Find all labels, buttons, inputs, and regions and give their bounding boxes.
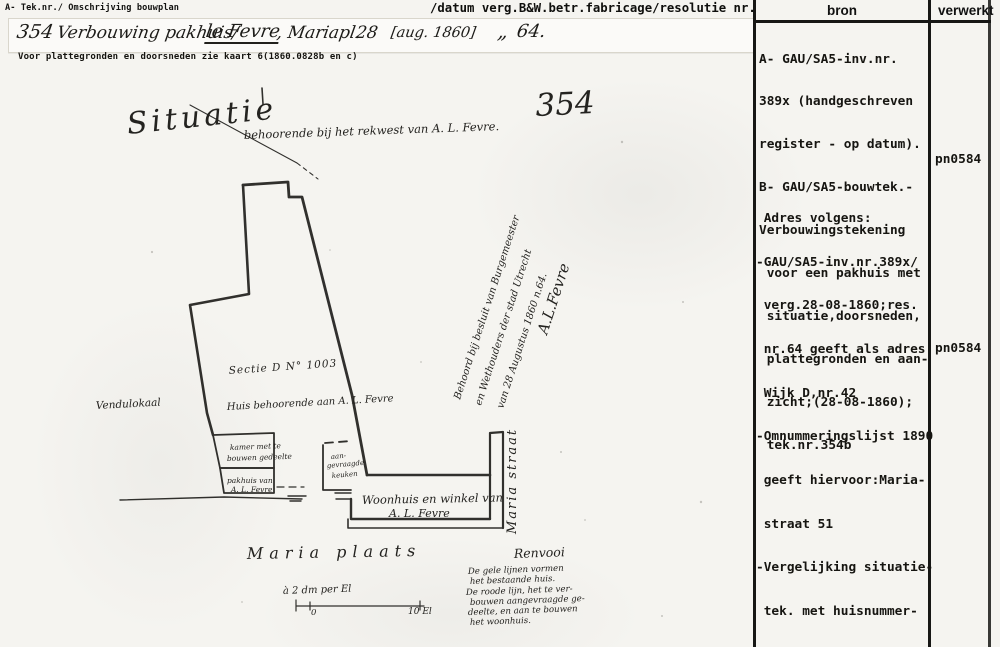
- kitchen-box-dashed-top: [325, 441, 351, 443]
- panel-right-border: [988, 0, 991, 647]
- annex-box2-label-2: A. L. Fevre: [230, 485, 273, 494]
- bron-a-line: 389x (handgeschreven: [759, 95, 929, 109]
- bron-b-line: -Omnummeringslijst 1890: [756, 430, 949, 445]
- scale-note: à 2 dm per El: [283, 584, 352, 597]
- panel-header-rule: [753, 20, 991, 23]
- kitchen-label-3: keuken: [331, 470, 358, 480]
- house-label-1: Woonhuis en winkel van: [362, 491, 503, 507]
- bron-b-line: tek. met huisnummer-: [756, 605, 949, 620]
- legend-title: Renvooi: [513, 544, 565, 561]
- scan-noise-specks: [151, 141, 702, 617]
- legend-line6: het woonhuis.: [470, 616, 531, 628]
- bron-a-line: register - op datum).: [759, 138, 929, 152]
- diagonal-slash-dashed: [297, 163, 318, 179]
- site-plan-drawing: Situatie behoorende bij het rekwest van …: [0, 0, 756, 647]
- annex-box1-label-1: kamer met te: [230, 441, 282, 452]
- ground-line: [120, 497, 302, 500]
- street-label-right: Maria straat: [505, 428, 520, 535]
- column-header-verwerkt: verwerkt: [938, 3, 994, 18]
- bron-b-line: -GAU/SA5-inv.nr.389x/: [756, 256, 949, 271]
- annex-box2-label-1: pakhuis van: [227, 476, 273, 485]
- sheet-number: 354: [535, 85, 596, 124]
- house-bottom-outer: [348, 519, 503, 528]
- scale-zero-label: 0: [311, 608, 317, 618]
- verwerkt-code-1: pn0584: [935, 152, 981, 167]
- house-label-2: A. L. Fevre: [388, 507, 450, 520]
- bron-b-line: Wijk D,nr.42: [756, 387, 949, 402]
- bron-a-line: A- GAU/SA5-inv.nr.: [759, 53, 929, 67]
- bron-block-b: Adres volgens: -GAU/SA5-inv.nr.389x/ ver…: [756, 183, 949, 647]
- street-edge-lines: [490, 432, 503, 528]
- left-building-label: Vendulokaal: [96, 397, 162, 412]
- parcel-section-label: Sectie D N° 1003: [228, 357, 337, 377]
- bron-b-line: Adres volgens:: [756, 212, 949, 227]
- bron-b-line: -Vergelijking situatie-: [756, 561, 949, 576]
- archive-card-page: A- Tek.nr./ Omschrijving bouwplan /datum…: [0, 0, 1000, 647]
- scale-end-label: 10 El: [408, 607, 432, 617]
- annex-box1-label-2: bouwen gedeelte: [227, 452, 293, 463]
- parcel-outline-right: [243, 182, 367, 475]
- bron-b-line: straat 51: [756, 518, 949, 533]
- situatie-subtitle: behoorende bij het rekwest van A. L. Fev…: [244, 119, 500, 142]
- bron-b-line: geeft hiervoor:Maria-: [756, 474, 949, 489]
- bron-b-line: verg.28-08-1860;res.: [756, 299, 949, 314]
- street-label-bottom: Maria plaats: [246, 541, 422, 563]
- column-header-bron: bron: [756, 3, 928, 18]
- bron-b-line: nr.64 geeft als adres: [756, 343, 949, 358]
- passage-lines: [288, 493, 351, 501]
- verwerkt-code-2: pn0584: [935, 341, 981, 356]
- parcel-outline-left: [190, 185, 249, 435]
- parcel-owner-label: Huis behoorende aan A. L. Fevre: [226, 393, 394, 413]
